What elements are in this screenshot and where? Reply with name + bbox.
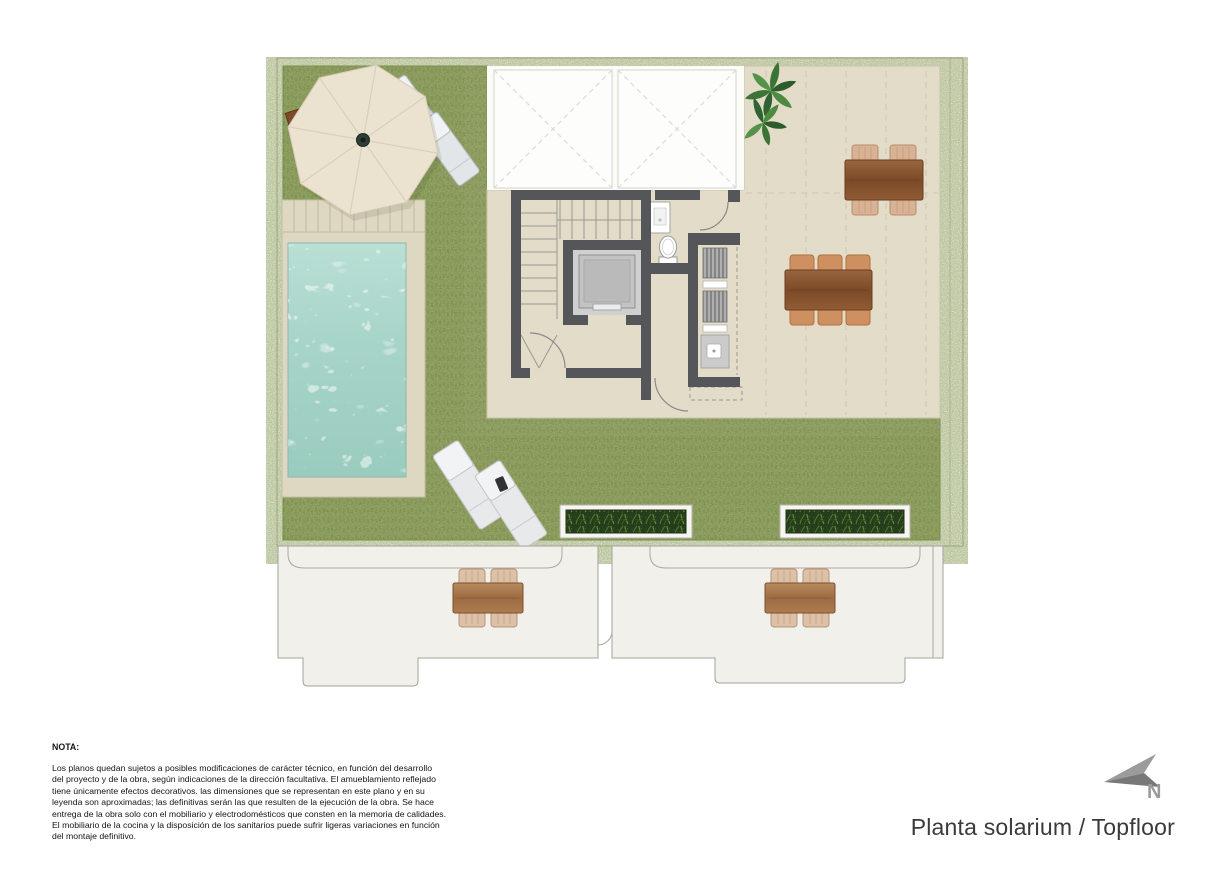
louvre-unit (703, 248, 727, 278)
note-heading: NOTA: (52, 742, 400, 752)
north-label: N (1147, 781, 1161, 803)
elevator (573, 250, 641, 315)
planter (780, 505, 910, 538)
utility-closet (701, 248, 729, 368)
page: NOTA: Los planos quedan sujetos a posibl… (0, 0, 1220, 870)
swimming-pool (288, 243, 406, 477)
shelf (703, 325, 727, 332)
floor-plan (266, 57, 968, 693)
elevator-door (593, 304, 621, 310)
lower-terraces (278, 546, 943, 686)
lower-terrace-left (278, 546, 598, 686)
washbasin-cabinet (650, 202, 670, 233)
floor-plan-drawing (266, 57, 968, 693)
note-text: Los planos quedan sujetos a posibles mod… (52, 763, 400, 843)
shelf (703, 281, 727, 288)
dining-table-6-seats (785, 255, 872, 325)
note-line: Los planos quedan sujetos a posibles mod… (52, 763, 400, 774)
note-line: entrega de la obra solo con el mobiliari… (52, 809, 400, 820)
note-block: NOTA: Los planos quedan sujetos a posibl… (52, 742, 400, 843)
skylight-panels (487, 66, 744, 190)
planter (560, 505, 692, 538)
north-indicator: N (1100, 750, 1170, 804)
note-line: El mobiliario de la cocina y la disposic… (52, 820, 400, 831)
note-line: leyenda son aproximadas; las definitivas… (52, 797, 400, 808)
note-line: tiene únicamente efectos decorativos. la… (52, 786, 400, 797)
note-line: del montaje definitivo. (52, 831, 400, 842)
note-line: del proyecto y de la obra, según indicac… (52, 774, 400, 785)
toilet (659, 236, 677, 266)
louvre-unit (703, 291, 727, 322)
page-title: Planta solarium / Topfloor (830, 814, 1175, 841)
